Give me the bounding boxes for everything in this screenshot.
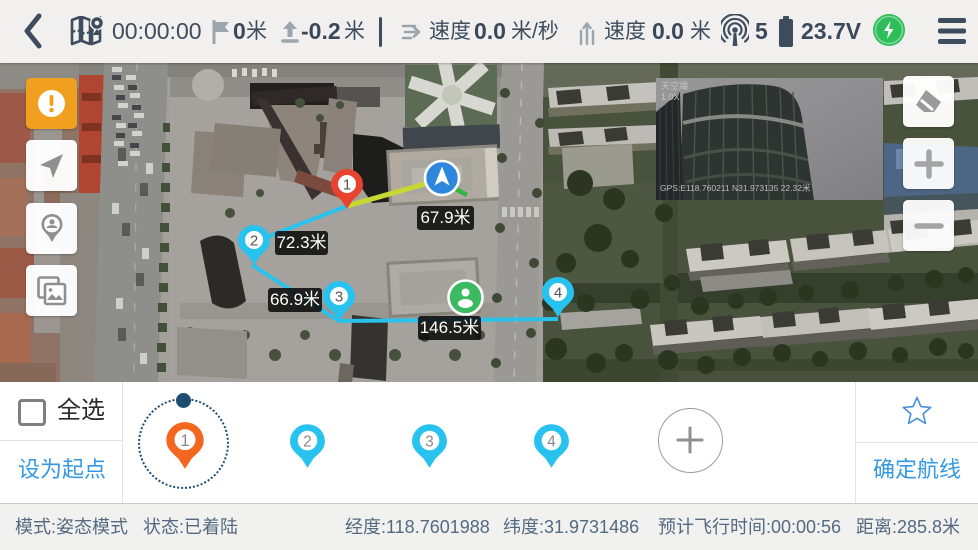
svg-text:天空端: 天空端 xyxy=(661,80,688,91)
svg-text:1: 1 xyxy=(180,432,189,450)
svg-text:2: 2 xyxy=(303,434,311,451)
svg-text:GPS:E118.760211 N31.973135 22.: GPS:E118.760211 N31.973135 22.32米 xyxy=(660,183,811,193)
svg-text:3: 3 xyxy=(425,434,433,451)
svg-text:3: 3 xyxy=(335,289,343,306)
svg-text:1.0X: 1.0X xyxy=(661,92,680,102)
svg-text:2: 2 xyxy=(250,233,258,250)
svg-text:4: 4 xyxy=(547,434,556,451)
svg-text:1: 1 xyxy=(343,177,351,194)
svg-text:4: 4 xyxy=(554,285,562,302)
